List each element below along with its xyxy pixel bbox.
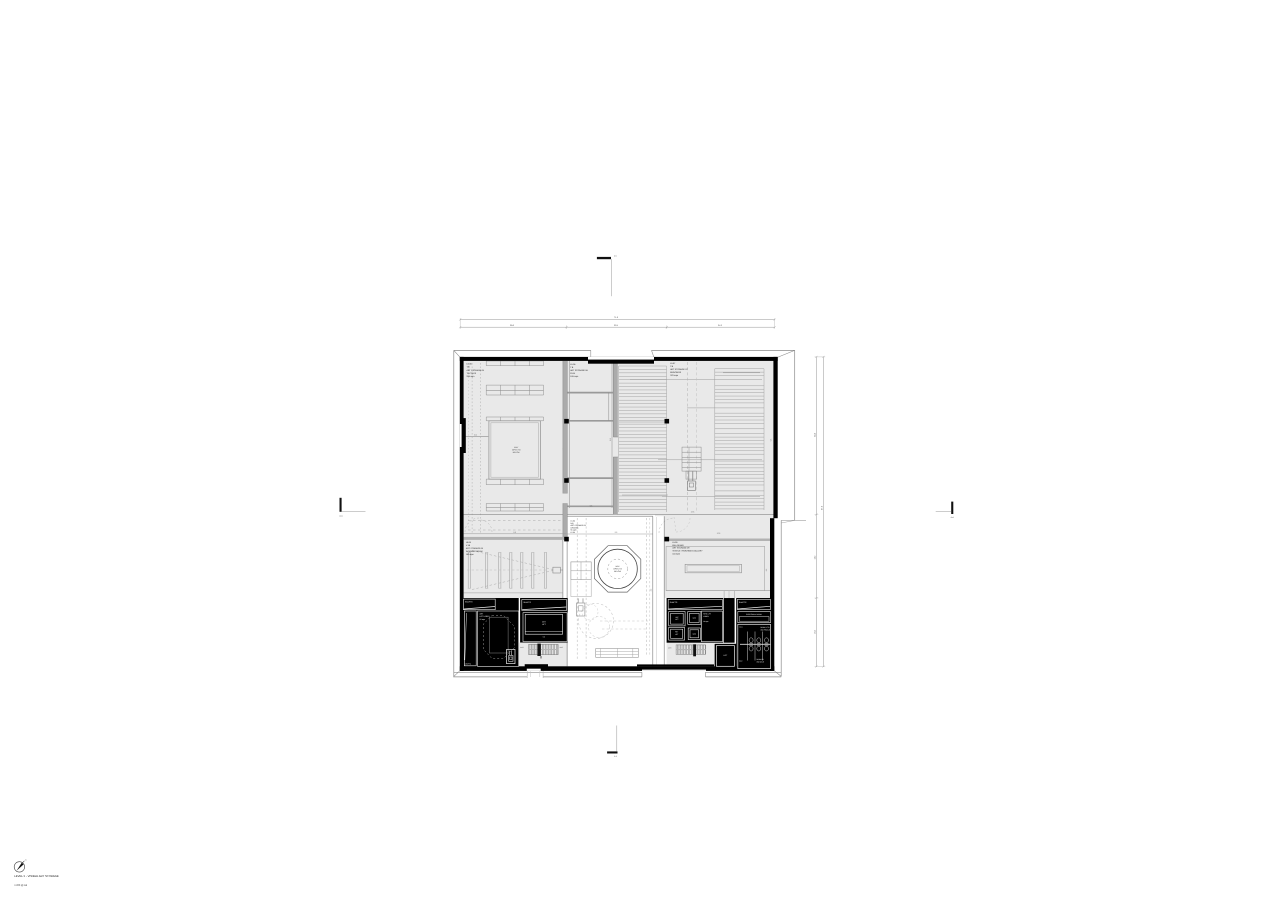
- svg-text:SHAFTS: SHAFTS: [739, 601, 747, 604]
- svg-text:L5.07: L5.07: [670, 362, 676, 365]
- svg-text:115 sqm: 115 sqm: [672, 553, 680, 556]
- svg-text:OPEN TO: OPEN TO: [613, 568, 622, 571]
- svg-text:3.2: 3.2: [650, 589, 653, 591]
- svg-text:18.2: 18.2: [813, 556, 816, 560]
- svg-text:370 sqm: 370 sqm: [670, 374, 678, 377]
- svg-text:L5.08: L5.08: [466, 541, 472, 544]
- svg-text:17.5: 17.5: [717, 532, 721, 535]
- svg-text:SHAFTS: SHAFTS: [670, 601, 678, 604]
- svg-text:V.1B: V.1B: [466, 544, 471, 547]
- svg-text:LEVEL 5 - VISIBLE ART STORAGE: LEVEL 5 - VISIBLE ART STORAGE: [14, 874, 59, 878]
- svg-text:L5.09: L5.09: [672, 541, 678, 544]
- svg-text:FBL-05 BAR: FBL-05 BAR: [672, 544, 684, 547]
- svg-text:180 sqm: 180 sqm: [466, 553, 474, 556]
- svg-text:ART STORAGE 06: ART STORAGE 06: [570, 369, 588, 372]
- svg-text:22 sqm: 22 sqm: [480, 618, 486, 621]
- svg-text:TEXTILES: TEXTILES: [467, 372, 477, 375]
- svg-text:3.6: 3.6: [474, 434, 477, 437]
- svg-text:34.4: 34.4: [813, 433, 816, 437]
- svg-text:LOBBY: LOBBY: [703, 615, 710, 618]
- svg-text:5.5: 5.5: [609, 438, 612, 441]
- svg-text:L5.06: L5.06: [570, 363, 576, 366]
- svg-text:5.5: 5.5: [769, 439, 772, 441]
- svg-text:LIFT LOBBY: LIFT LOBBY: [480, 615, 491, 618]
- svg-text:5.5: 5.5: [590, 504, 593, 507]
- svg-text:26.6: 26.6: [510, 324, 514, 327]
- svg-text:105 sqm: 105 sqm: [570, 375, 578, 378]
- svg-text:1:200 @ A3: 1:200 @ A3: [14, 884, 27, 887]
- svg-text:WAY: WAY: [616, 565, 621, 568]
- svg-text:OPEN TO: OPEN TO: [512, 449, 521, 452]
- svg-text:ART STORAGE 07: ART STORAGE 07: [670, 368, 688, 371]
- svg-text:WAY: WAY: [514, 446, 519, 449]
- svg-text:WORKING ROOM: WORKING ROOM: [466, 550, 483, 553]
- svg-text:1-1: 1-1: [614, 755, 617, 758]
- svg-text:5.5: 5.5: [513, 531, 516, 534]
- svg-text:SHAFTS: SHAFTS: [523, 601, 531, 604]
- svg-text:L5.04: L5.04: [571, 531, 576, 534]
- svg-text:ART STORAGE 05: ART STORAGE 05: [467, 369, 485, 372]
- svg-text:1-1: 1-1: [614, 254, 617, 257]
- svg-text:TEXTILE / PAINTINGS GALLERY: TEXTILE / PAINTINGS GALLERY: [672, 550, 703, 553]
- svg-text:SHAFTS: SHAFTS: [465, 601, 473, 604]
- svg-text:15.0: 15.0: [813, 630, 816, 634]
- svg-text:BELOW: BELOW: [614, 570, 621, 573]
- svg-text:ART STORAGE 08: ART STORAGE 08: [466, 547, 484, 550]
- svg-text:24.3: 24.3: [718, 324, 722, 327]
- svg-text:22.5: 22.5: [614, 324, 618, 327]
- svg-text:5.5: 5.5: [615, 531, 618, 534]
- svg-text:17.5: 17.5: [691, 511, 695, 514]
- svg-text:3.2: 3.2: [765, 569, 768, 571]
- svg-text:ART STORAGE 09: ART STORAGE 09: [672, 547, 690, 550]
- svg-text:BELOW: BELOW: [513, 451, 520, 454]
- svg-text:295 sqm: 295 sqm: [467, 375, 475, 378]
- svg-text:L5.05: L5.05: [467, 363, 473, 366]
- svg-text:FILM: FILM: [570, 372, 575, 375]
- svg-text:PAINTINGS: PAINTINGS: [670, 371, 682, 374]
